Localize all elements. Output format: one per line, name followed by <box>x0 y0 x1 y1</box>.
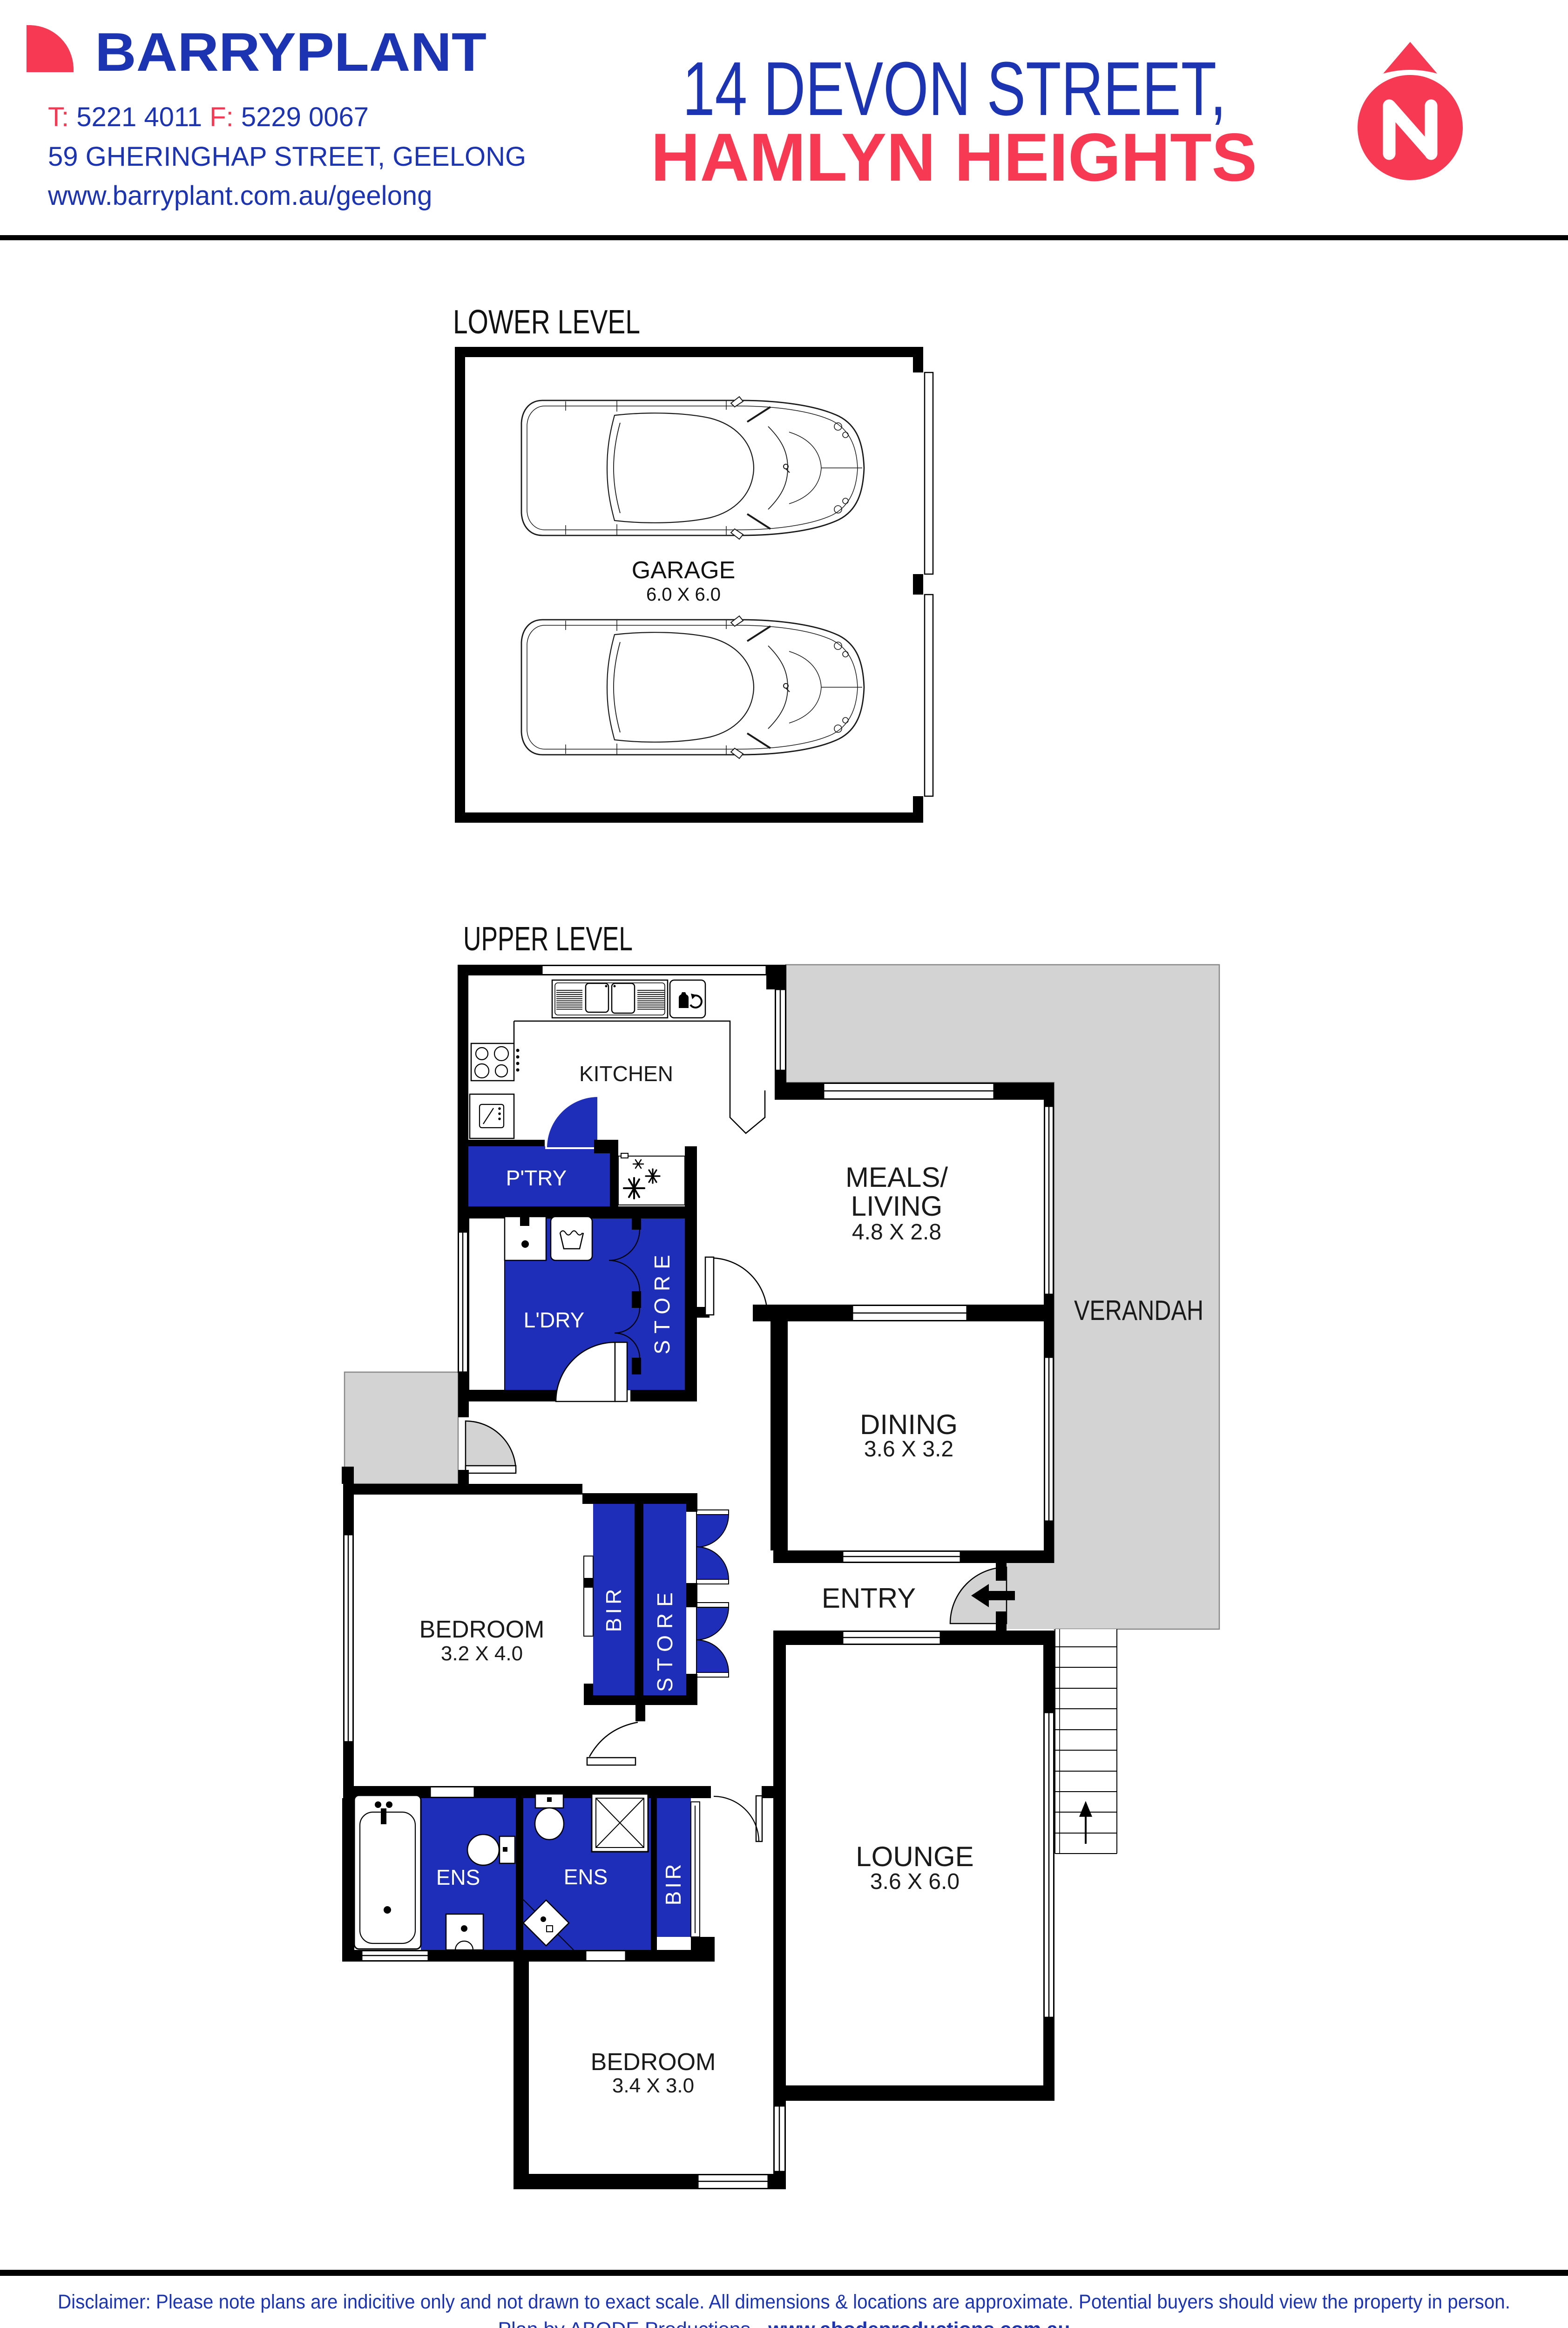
svg-text:3.4 X 3.0: 3.4 X 3.0 <box>612 2074 694 2097</box>
svg-text:L'DRY: L'DRY <box>524 1308 585 1332</box>
svg-text:ENS: ENS <box>564 1865 608 1889</box>
svg-text:STORE: STORE <box>650 1248 674 1354</box>
svg-text:GARAGE: GARAGE <box>632 557 736 584</box>
svg-text:VERANDAH: VERANDAH <box>1074 1295 1203 1326</box>
svg-text:STORE: STORE <box>653 1586 677 1692</box>
svg-text:BEDROOM: BEDROOM <box>591 2049 716 2076</box>
svg-text:3.6 X 3.2: 3.6 X 3.2 <box>864 1437 953 1462</box>
svg-text:Plan by ABODE Productions - ww: Plan by ABODE Productions - www.abodepro… <box>498 2318 1070 2328</box>
svg-text:ENTRY: ENTRY <box>822 1583 916 1614</box>
svg-text:DINING: DINING <box>860 1409 958 1440</box>
svg-text:MEALS/: MEALS/ <box>845 1162 948 1193</box>
svg-text:4.8 X 2.8: 4.8 X 2.8 <box>852 1220 941 1245</box>
svg-text:T: 5221 4011 F: 5229 0067: T: 5221 4011 F: 5229 0067 <box>48 102 369 132</box>
svg-text:Disclaimer: Please note plans: Disclaimer: Please note plans are indici… <box>58 2291 1510 2313</box>
svg-text:14 DEVON STREET,: 14 DEVON STREET, <box>683 46 1226 131</box>
svg-text:KITCHEN: KITCHEN <box>579 1062 673 1086</box>
svg-text:LOUNGE: LOUNGE <box>856 1841 973 1872</box>
svg-text:HAMLYN HEIGHTS: HAMLYN HEIGHTS <box>651 119 1257 195</box>
svg-text:BARRYPLANT: BARRYPLANT <box>95 21 487 82</box>
svg-text:UPPER LEVEL: UPPER LEVEL <box>463 920 633 958</box>
svg-text:6.0 X 6.0: 6.0 X 6.0 <box>646 584 721 605</box>
svg-text:BIR: BIR <box>602 1585 626 1632</box>
svg-text:ENS: ENS <box>436 1865 480 1889</box>
svg-text:59 GHERINGHAP STREET, GEELONG: 59 GHERINGHAP STREET, GEELONG <box>48 142 526 172</box>
svg-text:LOWER LEVEL: LOWER LEVEL <box>453 304 640 341</box>
svg-text:3.6 X 6.0: 3.6 X 6.0 <box>870 1869 960 1894</box>
svg-text:P'TRY: P'TRY <box>506 1166 567 1190</box>
svg-text:LIVING: LIVING <box>851 1191 943 1222</box>
svg-text:3.2 X 4.0: 3.2 X 4.0 <box>441 1642 523 1665</box>
svg-text:BIR: BIR <box>661 1861 685 1906</box>
svg-text:BEDROOM: BEDROOM <box>419 1616 545 1643</box>
svg-text:www.barryplant.com.au/geelong: www.barryplant.com.au/geelong <box>47 181 432 211</box>
